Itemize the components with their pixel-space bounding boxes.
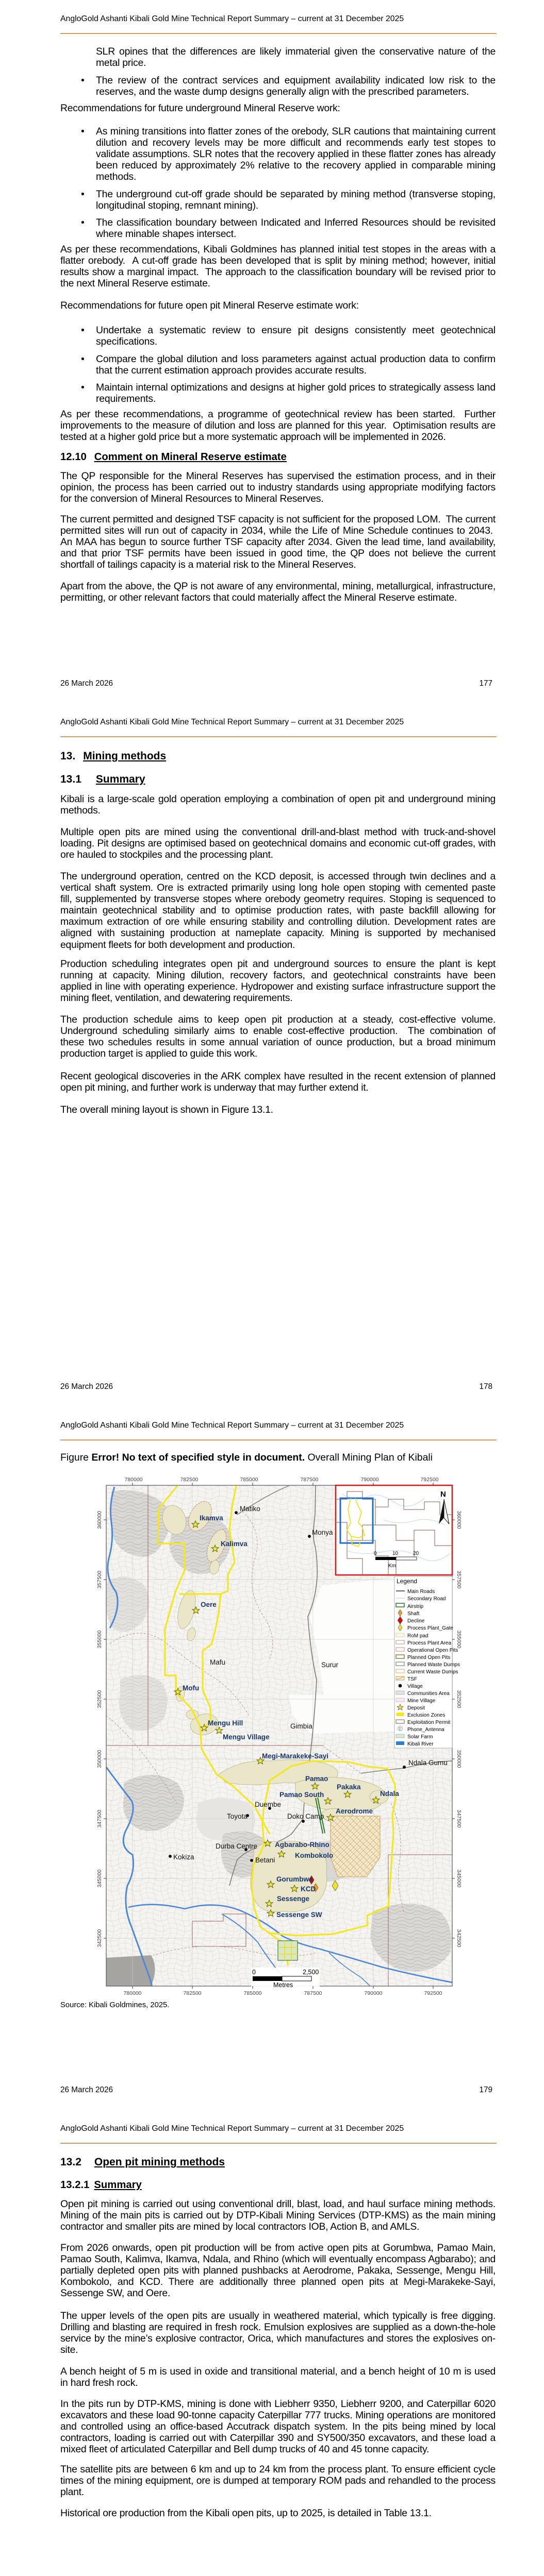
svg-text:357500: 357500 <box>456 1570 461 1588</box>
svg-text:Secondary Road: Secondary Road <box>407 1596 446 1602</box>
svg-text:Surur: Surur <box>321 1661 339 1669</box>
svg-text:TSF: TSF <box>407 1676 417 1682</box>
svg-text:357500: 357500 <box>96 1570 103 1588</box>
svg-text:Shaft: Shaft <box>407 1611 420 1617</box>
svg-text:Matiko: Matiko <box>240 1505 260 1513</box>
svg-text:Communities Area: Communities Area <box>407 1691 450 1697</box>
svg-text:Airstrip: Airstrip <box>407 1604 424 1609</box>
svg-text:Kombokolo: Kombokolo <box>295 1852 333 1859</box>
svg-text:10: 10 <box>392 1551 399 1556</box>
svg-text:Sessenge SW: Sessenge SW <box>276 1911 322 1919</box>
svg-text:Solar Farm: Solar Farm <box>407 1734 433 1740</box>
svg-text:785000: 785000 <box>243 1990 261 1996</box>
svg-text:Duembe: Duembe <box>255 1801 281 1808</box>
svg-text:T: T <box>399 1727 401 1732</box>
svg-text:Gimbia: Gimbia <box>290 1722 312 1730</box>
svg-text:Km: Km <box>388 1563 396 1569</box>
svg-text:Village: Village <box>407 1684 423 1689</box>
svg-text:Monya: Monya <box>312 1529 333 1536</box>
svg-text:350000: 350000 <box>456 1750 461 1768</box>
svg-text:342500: 342500 <box>456 1929 461 1947</box>
svg-text:Betani: Betani <box>255 1856 275 1864</box>
svg-text:360000: 360000 <box>96 1511 103 1529</box>
svg-text:RoM pad: RoM pad <box>407 1633 428 1639</box>
svg-text:782500: 782500 <box>180 1477 198 1483</box>
svg-text:787500: 787500 <box>304 1990 322 1996</box>
svg-text:Current Waste Dumps: Current Waste Dumps <box>407 1669 458 1675</box>
svg-text:Kalimva: Kalimva <box>221 1540 248 1548</box>
svg-text:Agbarabo-Rhino: Agbarabo-Rhino <box>275 1841 329 1849</box>
svg-text:Mofu: Mofu <box>183 1684 199 1692</box>
svg-text:355000: 355000 <box>456 1630 461 1648</box>
svg-text:782500: 782500 <box>183 1990 201 1996</box>
svg-text:345000: 345000 <box>456 1869 461 1887</box>
svg-text:Doko Camp: Doko Camp <box>287 1812 324 1820</box>
svg-text:Kibali River: Kibali River <box>407 1741 434 1747</box>
svg-text:Mine Village: Mine Village <box>407 1698 436 1704</box>
svg-text:Operational Open Pits: Operational Open Pits <box>407 1648 458 1653</box>
svg-text:Pamao: Pamao <box>305 1775 328 1783</box>
svg-text:Megi-Marakeke-Sayi: Megi-Marakeke-Sayi <box>262 1752 328 1760</box>
svg-text:790000: 790000 <box>364 1990 382 1996</box>
svg-text:790000: 790000 <box>360 1477 378 1483</box>
svg-text:Phone_Antenna: Phone_Antenna <box>407 1727 444 1733</box>
svg-text:Metres: Metres <box>273 1981 293 1989</box>
svg-text:Exploitation Permit: Exploitation Permit <box>407 1720 451 1725</box>
svg-text:350000: 350000 <box>96 1750 103 1768</box>
svg-text:Kokiza: Kokiza <box>173 1853 194 1861</box>
svg-text:N: N <box>440 1490 446 1499</box>
svg-text:780000: 780000 <box>123 1990 141 1996</box>
svg-text:Legend: Legend <box>397 1578 417 1585</box>
svg-text:787500: 787500 <box>300 1477 318 1483</box>
svg-text:342500: 342500 <box>96 1929 103 1947</box>
svg-text:Toyota: Toyota <box>227 1812 248 1820</box>
svg-text:Ikamva: Ikamva <box>200 1514 223 1522</box>
svg-text:Process Plant Area: Process Plant Area <box>407 1640 451 1646</box>
svg-text:792500: 792500 <box>420 1477 438 1483</box>
svg-text:Main Roads: Main Roads <box>407 1589 435 1595</box>
svg-text:347500: 347500 <box>456 1809 461 1827</box>
svg-text:360000: 360000 <box>456 1511 461 1529</box>
svg-text:352500: 352500 <box>96 1690 103 1708</box>
svg-text:785000: 785000 <box>240 1477 258 1483</box>
svg-text:2,500: 2,500 <box>303 1969 319 1976</box>
svg-text:Sessenge: Sessenge <box>277 1895 310 1903</box>
svg-text:Exclusion Zones: Exclusion Zones <box>407 1713 445 1718</box>
svg-text:345000: 345000 <box>96 1869 103 1887</box>
svg-text:Aerodrome: Aerodrome <box>336 1807 373 1815</box>
svg-text:20: 20 <box>413 1551 419 1556</box>
svg-text:0: 0 <box>374 1551 377 1556</box>
svg-text:Ndala: Ndala <box>380 1790 399 1798</box>
svg-text:Mengu Hill: Mengu Hill <box>208 1719 243 1727</box>
svg-text:Mengu Village: Mengu Village <box>223 1733 270 1741</box>
svg-text:Pamao South: Pamao South <box>279 1791 324 1799</box>
svg-text:Decline: Decline <box>407 1618 425 1624</box>
svg-text:355000: 355000 <box>96 1630 103 1648</box>
svg-text:0: 0 <box>252 1969 256 1976</box>
svg-text:Gorumbwa: Gorumbwa <box>276 1875 313 1883</box>
svg-text:Durba Centre: Durba Centre <box>216 1842 257 1850</box>
svg-text:Oere: Oere <box>201 1601 217 1608</box>
svg-text:Process Plant_Gate: Process Plant_Gate <box>407 1625 453 1631</box>
svg-text:347500: 347500 <box>96 1809 103 1827</box>
svg-text:780000: 780000 <box>124 1477 142 1483</box>
svg-text:Planned Open Pits: Planned Open Pits <box>407 1655 450 1660</box>
svg-text:Ndala Gumu: Ndala Gumu <box>408 1759 448 1767</box>
svg-text:Pakaka: Pakaka <box>337 1783 361 1791</box>
svg-text:352500: 352500 <box>456 1690 461 1708</box>
svg-text:Deposit: Deposit <box>407 1705 425 1711</box>
svg-text:Mafu: Mafu <box>210 1658 225 1666</box>
svg-text:Planned Waste Dumps: Planned Waste Dumps <box>407 1662 460 1668</box>
svg-text:KCD: KCD <box>301 1885 316 1893</box>
svg-text:792500: 792500 <box>424 1990 442 1996</box>
